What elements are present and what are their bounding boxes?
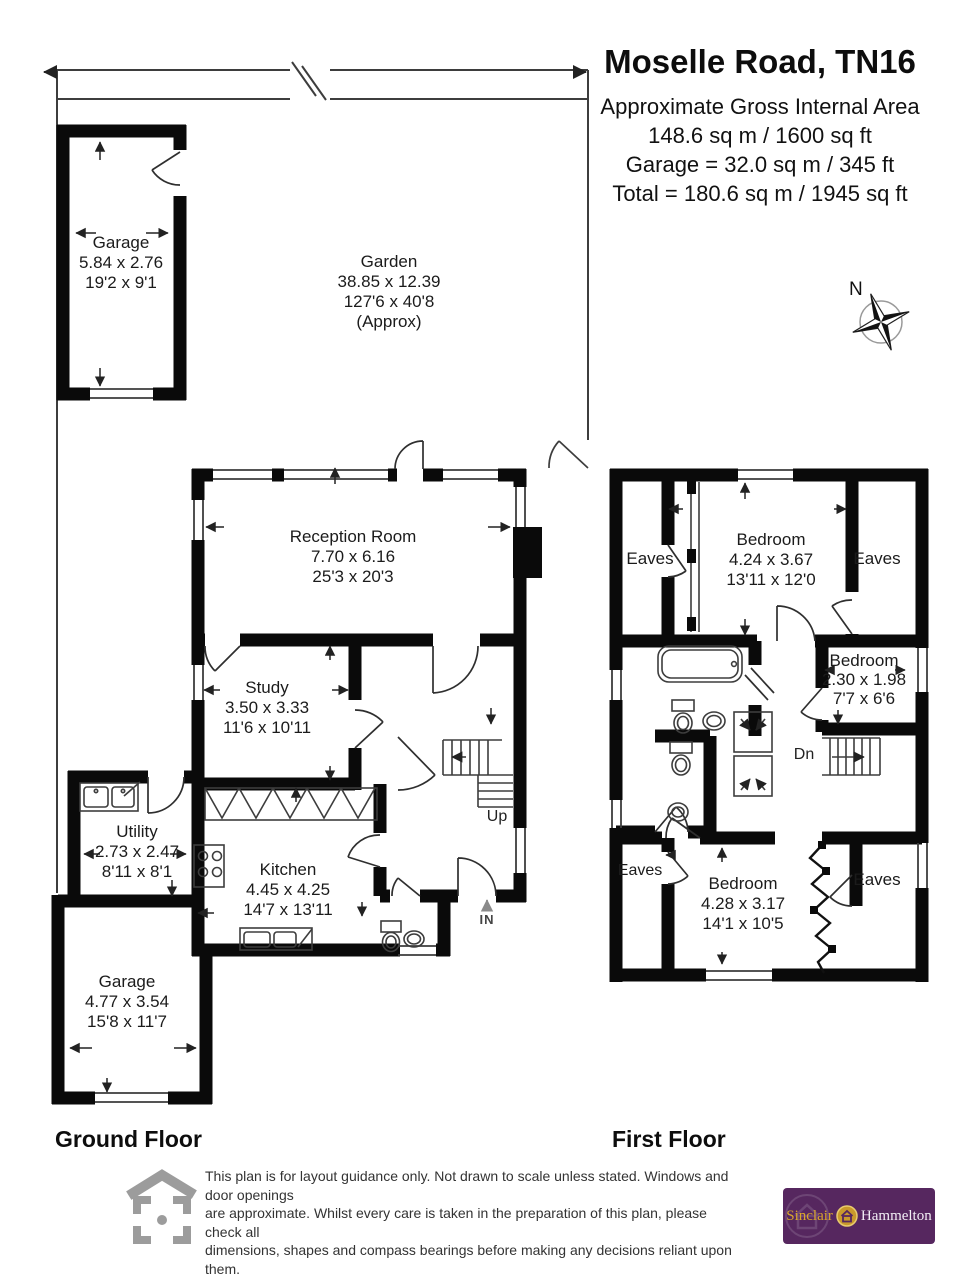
room-label-bedroom-mid: Bedroom 2.30 x 1.98 7'7 x 6'6 bbox=[789, 651, 939, 708]
room-label-garden: Garden 38.85 x 12.39 127'6 x 40'8 (Appro… bbox=[314, 252, 464, 332]
eaves-label-bottom-right: Eaves bbox=[837, 870, 917, 890]
room-label-garage-top: Garage 5.84 x 2.76 19'2 x 9'1 bbox=[46, 233, 196, 293]
area-line: Garage = 32.0 sq m / 345 ft bbox=[585, 150, 935, 179]
title-block: Moselle Road, TN16 Approximate Gross Int… bbox=[585, 44, 935, 208]
entrance-in-label: IN bbox=[469, 913, 505, 927]
room-label-kitchen: Kitchen 4.45 x 4.25 14'7 x 13'11 bbox=[213, 860, 363, 920]
ground-floor-label: Ground Floor bbox=[55, 1126, 202, 1152]
room-label-study: Study 3.50 x 3.33 11'6 x 10'11 bbox=[192, 678, 342, 738]
brand-name-right: Hammelton bbox=[861, 1208, 932, 1224]
room-label-garage-bottom: Garage 4.77 x 3.54 15'8 x 11'7 bbox=[52, 972, 202, 1032]
area-line: Total = 180.6 sq m / 1945 sq ft bbox=[585, 179, 935, 208]
stairs-up-label: Up bbox=[479, 808, 515, 826]
page-title: Moselle Road, TN16 bbox=[585, 44, 935, 80]
brand-name-left: Sinclair bbox=[786, 1208, 833, 1224]
room-label-utility: Utility 2.73 x 2.47 8'11 x 8'1 bbox=[62, 822, 212, 882]
compass-north-label: N bbox=[849, 280, 863, 300]
first-floor-stairs bbox=[822, 738, 880, 775]
room-label-bedroom-bottom: Bedroom 4.28 x 3.17 14'1 x 10'5 bbox=[668, 874, 818, 934]
planpix-logo-icon bbox=[133, 1175, 190, 1240]
ground-floor-stairs bbox=[443, 740, 513, 807]
eaves-label-bottom-left: Eaves bbox=[600, 861, 680, 881]
floorplan-page: Moselle Road, TN16 Approximate Gross Int… bbox=[0, 0, 980, 1277]
room-label-reception: Reception Room 7.70 x 6.16 25'3 x 20'3 bbox=[278, 527, 428, 587]
bay-window-pier bbox=[513, 527, 542, 578]
room-label-bedroom-top: Bedroom 4.24 x 3.67 13'11 x 12'0 bbox=[696, 530, 846, 590]
compass-icon bbox=[853, 294, 909, 350]
disclaimer: This plan is for layout guidance only. N… bbox=[205, 1167, 745, 1277]
agency-logo: Sinclair Hammelton bbox=[783, 1188, 935, 1244]
area-line: Approximate Gross Internal Area bbox=[585, 92, 935, 121]
first-floor-label: First Floor bbox=[612, 1126, 726, 1152]
area-line: 148.6 sq m / 1600 sq ft bbox=[585, 121, 935, 150]
eaves-label-top-left: Eaves bbox=[610, 549, 690, 569]
eaves-label-top-right: Eaves bbox=[837, 549, 917, 569]
badge-house-icon bbox=[836, 1205, 858, 1227]
stairs-dn-label: Dn bbox=[786, 746, 822, 764]
